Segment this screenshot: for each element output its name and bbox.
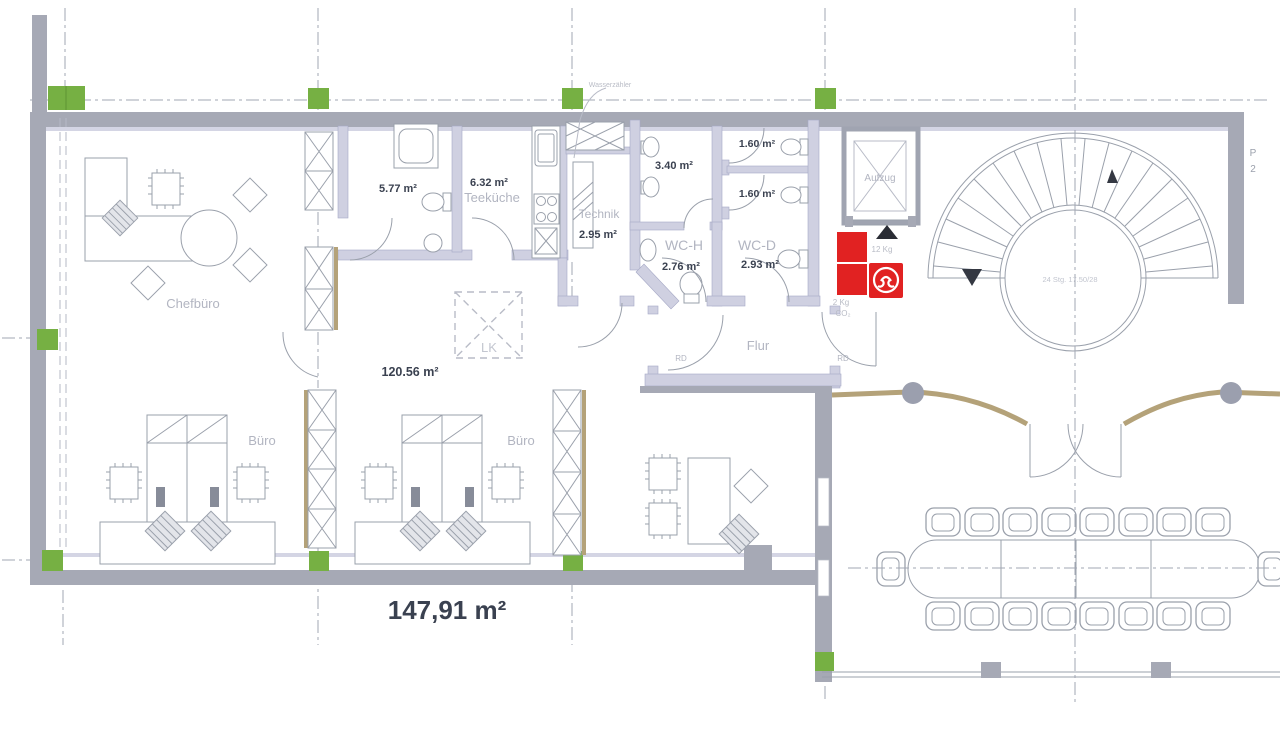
chair [1003,602,1037,630]
room-label-buero-2: Büro [507,433,534,448]
conference-room [832,382,1280,630]
chair [1042,602,1076,630]
chair [1119,602,1153,630]
workspace-open-area [645,454,768,554]
sink [424,234,442,252]
stair-note: 24 Stg. 17.50/28 [1042,275,1097,284]
area-label-bad: 5.77 m² [379,183,417,195]
edge-label-p: P [1250,148,1257,159]
area-label-urinal-room: 3.40 m² [655,160,693,172]
fire-extinguisher-co2 [837,264,867,295]
desk-round-end [181,210,237,266]
door-label-rd-left: RD [675,354,687,363]
room-chefbuero [85,158,267,300]
chair [1157,508,1191,536]
area-label-teekueche: 6.32 m² [470,177,508,189]
staircase [928,133,1218,351]
room-buero-2 [355,415,530,564]
visitor-chair [233,178,267,212]
chair [1080,602,1114,630]
room-teekueche [532,126,560,258]
wall-conference-bottom [822,672,1280,677]
visitor-chair [233,248,267,282]
area-label-wc-d: 2.93 m² [741,259,779,271]
door-urinal-room [684,199,713,228]
door-label-rd-right: RD [837,354,849,363]
area-label-technik: 2.95 m² [579,229,617,241]
glass-wall-left [832,392,1027,424]
label-lk: LK [481,340,497,355]
chair [1196,508,1230,536]
chair [1042,508,1076,536]
room-label-buero-1: Büro [248,433,275,448]
side-chair [106,463,142,503]
side-chair [148,169,184,209]
room-label-aufzug: Aufzug [864,173,895,184]
glass-wall-right [1124,392,1280,424]
chair [1003,508,1037,536]
chair [965,602,999,630]
chair [1157,602,1191,630]
label-wasserzaehler: Wasserzähler [589,82,632,89]
sideboard [355,522,530,564]
window-glazing-left [60,118,66,552]
sideboard [100,522,275,564]
column-dot [902,382,924,404]
side-chair [361,463,397,503]
chair [965,508,999,536]
direction-triangle [876,225,898,239]
chair [1258,552,1280,586]
shower [394,124,438,168]
door-technik [578,303,622,347]
chair [926,508,960,536]
room-label-teekueche: Teeküche [464,190,520,205]
conference-table [908,540,1260,598]
edge-label-2: 2 [1250,164,1256,175]
total-area-label: 147,91 m² [388,595,507,625]
chair [926,602,960,630]
wall-conference-left [815,392,832,682]
wall-column-bottom [744,545,772,582]
chair [877,552,905,586]
fire-equipment [837,232,903,298]
sink [640,239,656,261]
room-label-technik: Technik [579,207,621,221]
toilet [680,272,702,296]
area-label-open-space: 120.56 m² [382,365,439,379]
label-co2: CO₂ [835,309,850,318]
door-teekueche [472,218,514,260]
room-label-flur: Flur [747,338,770,353]
visitor-chair [131,266,165,300]
area-label-wc-h: 2.76 m² [662,261,700,273]
side-chair [488,463,524,503]
room-label-chefbuero: Chefbüro [166,296,219,311]
wall-top-left-column [32,15,47,115]
chair [1080,508,1114,536]
elevator [844,129,918,239]
area-label-wc-cabin1: 1.60 m² [739,138,776,150]
side-chair [645,454,681,494]
wall-bottom [30,570,822,585]
chair [1196,602,1230,630]
stair-arrow-up [1107,169,1118,183]
side-chair [233,463,269,503]
floor-plan: Chefbüro Büro Büro 5.77 m² 6.32 m² Teekü… [0,0,1280,736]
chair [1119,508,1153,536]
visitor-chair [734,469,768,503]
wall-right [1228,112,1244,304]
door-chefbuero [283,332,318,377]
door-flur-right [822,312,876,366]
column-dot [1220,382,1242,404]
label-12kg: 12 Kg [872,245,893,254]
label-2kg: 2 Kg [833,298,849,307]
side-chair [645,499,681,539]
room-label-wc-h: WC-H [665,237,703,253]
area-label-wc-cabin2: 1.60 m² [739,188,776,200]
room-label-wc-d: WC-D [738,237,776,253]
kitchen-counter [532,126,560,258]
fire-extinguisher-12kg [837,232,867,262]
